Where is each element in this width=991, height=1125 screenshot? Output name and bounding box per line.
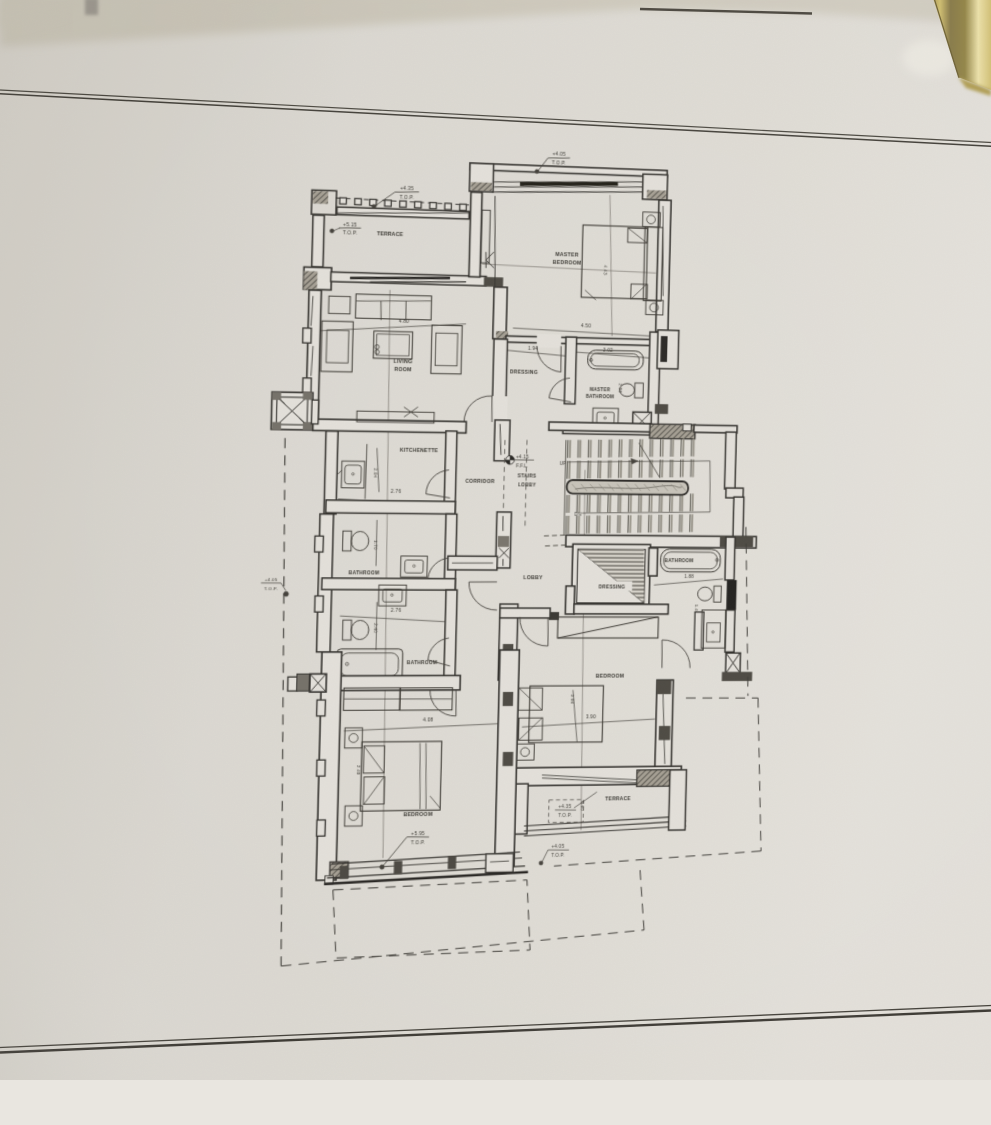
svg-text:MASTER: MASTER: [555, 252, 578, 258]
svg-text:4.50: 4.50: [581, 323, 591, 329]
svg-text:+4.15: +4.15: [516, 454, 529, 460]
svg-text:2.40: 2.40: [356, 765, 361, 775]
svg-text:BEDROOM: BEDROOM: [596, 674, 625, 680]
svg-text:3.88: 3.88: [570, 694, 575, 704]
svg-text:LIVING: LIVING: [393, 359, 412, 365]
svg-text:BATHROOM: BATHROOM: [664, 558, 693, 564]
svg-text:1.94: 1.94: [528, 346, 538, 352]
svg-text:+4.05: +4.05: [265, 577, 278, 582]
svg-text:4.80: 4.80: [399, 319, 410, 325]
svg-text:+4.05: +4.05: [552, 152, 565, 158]
svg-text:UP: UP: [560, 461, 567, 467]
svg-text:T.O.P.: T.O.P.: [558, 813, 572, 819]
svg-text:3.90: 3.90: [586, 714, 596, 720]
svg-text:BEDROOM: BEDROOM: [403, 812, 433, 818]
svg-text:+5.95: +5.95: [411, 831, 425, 837]
svg-text:1.88: 1.88: [684, 574, 694, 580]
svg-text:+4.35: +4.35: [559, 804, 572, 810]
svg-text:2.76: 2.76: [391, 608, 402, 614]
svg-text:LOBBY: LOBBY: [518, 483, 536, 489]
svg-text:BATHROOM: BATHROOM: [407, 660, 437, 666]
svg-text:T.O.P.: T.O.P.: [400, 195, 415, 201]
svg-text:2.40: 2.40: [372, 623, 378, 633]
svg-text:MASTER: MASTER: [590, 387, 611, 393]
svg-text:BATHROOM: BATHROOM: [586, 394, 614, 400]
svg-text:4.43: 4.43: [602, 265, 608, 275]
svg-text:4.08: 4.08: [423, 717, 434, 723]
svg-text:+4.35: +4.35: [400, 186, 414, 192]
svg-text:F.F.L.: F.F.L.: [516, 463, 529, 469]
svg-text:CORRIDOR: CORRIDOR: [465, 479, 495, 485]
svg-text:DRESSING: DRESSING: [510, 370, 538, 376]
svg-text:T.O.P.: T.O.P.: [343, 231, 358, 237]
svg-text:2.04: 2.04: [372, 468, 378, 478]
svg-text:BATHROOM: BATHROOM: [349, 570, 380, 576]
svg-text:KITCHENETTE: KITCHENETTE: [400, 448, 439, 454]
svg-text:+4.05: +4.05: [552, 844, 565, 850]
svg-text:ROOM: ROOM: [394, 367, 412, 373]
svg-text:BEDROOM: BEDROOM: [553, 260, 582, 266]
svg-text:T.O.P.: T.O.P.: [264, 586, 278, 591]
svg-text:LOBBY: LOBBY: [523, 575, 543, 581]
svg-text:0.60: 0.60: [580, 801, 585, 811]
svg-text:STAIRS: STAIRS: [518, 474, 537, 480]
svg-text:+5.15: +5.15: [343, 222, 357, 228]
svg-text:T.O.P.: T.O.P.: [552, 161, 566, 167]
svg-text:T.O.P.: T.O.P.: [411, 840, 426, 846]
svg-text:T.O.P.: T.O.P.: [551, 853, 565, 859]
svg-text:DRESSING: DRESSING: [599, 585, 626, 591]
svg-text:TERRACE: TERRACE: [605, 796, 631, 802]
svg-text:1.70: 1.70: [372, 540, 378, 550]
svg-text:2.76: 2.76: [391, 489, 402, 495]
svg-text:TERRACE: TERRACE: [377, 232, 403, 239]
svg-text:DN: DN: [574, 512, 581, 518]
